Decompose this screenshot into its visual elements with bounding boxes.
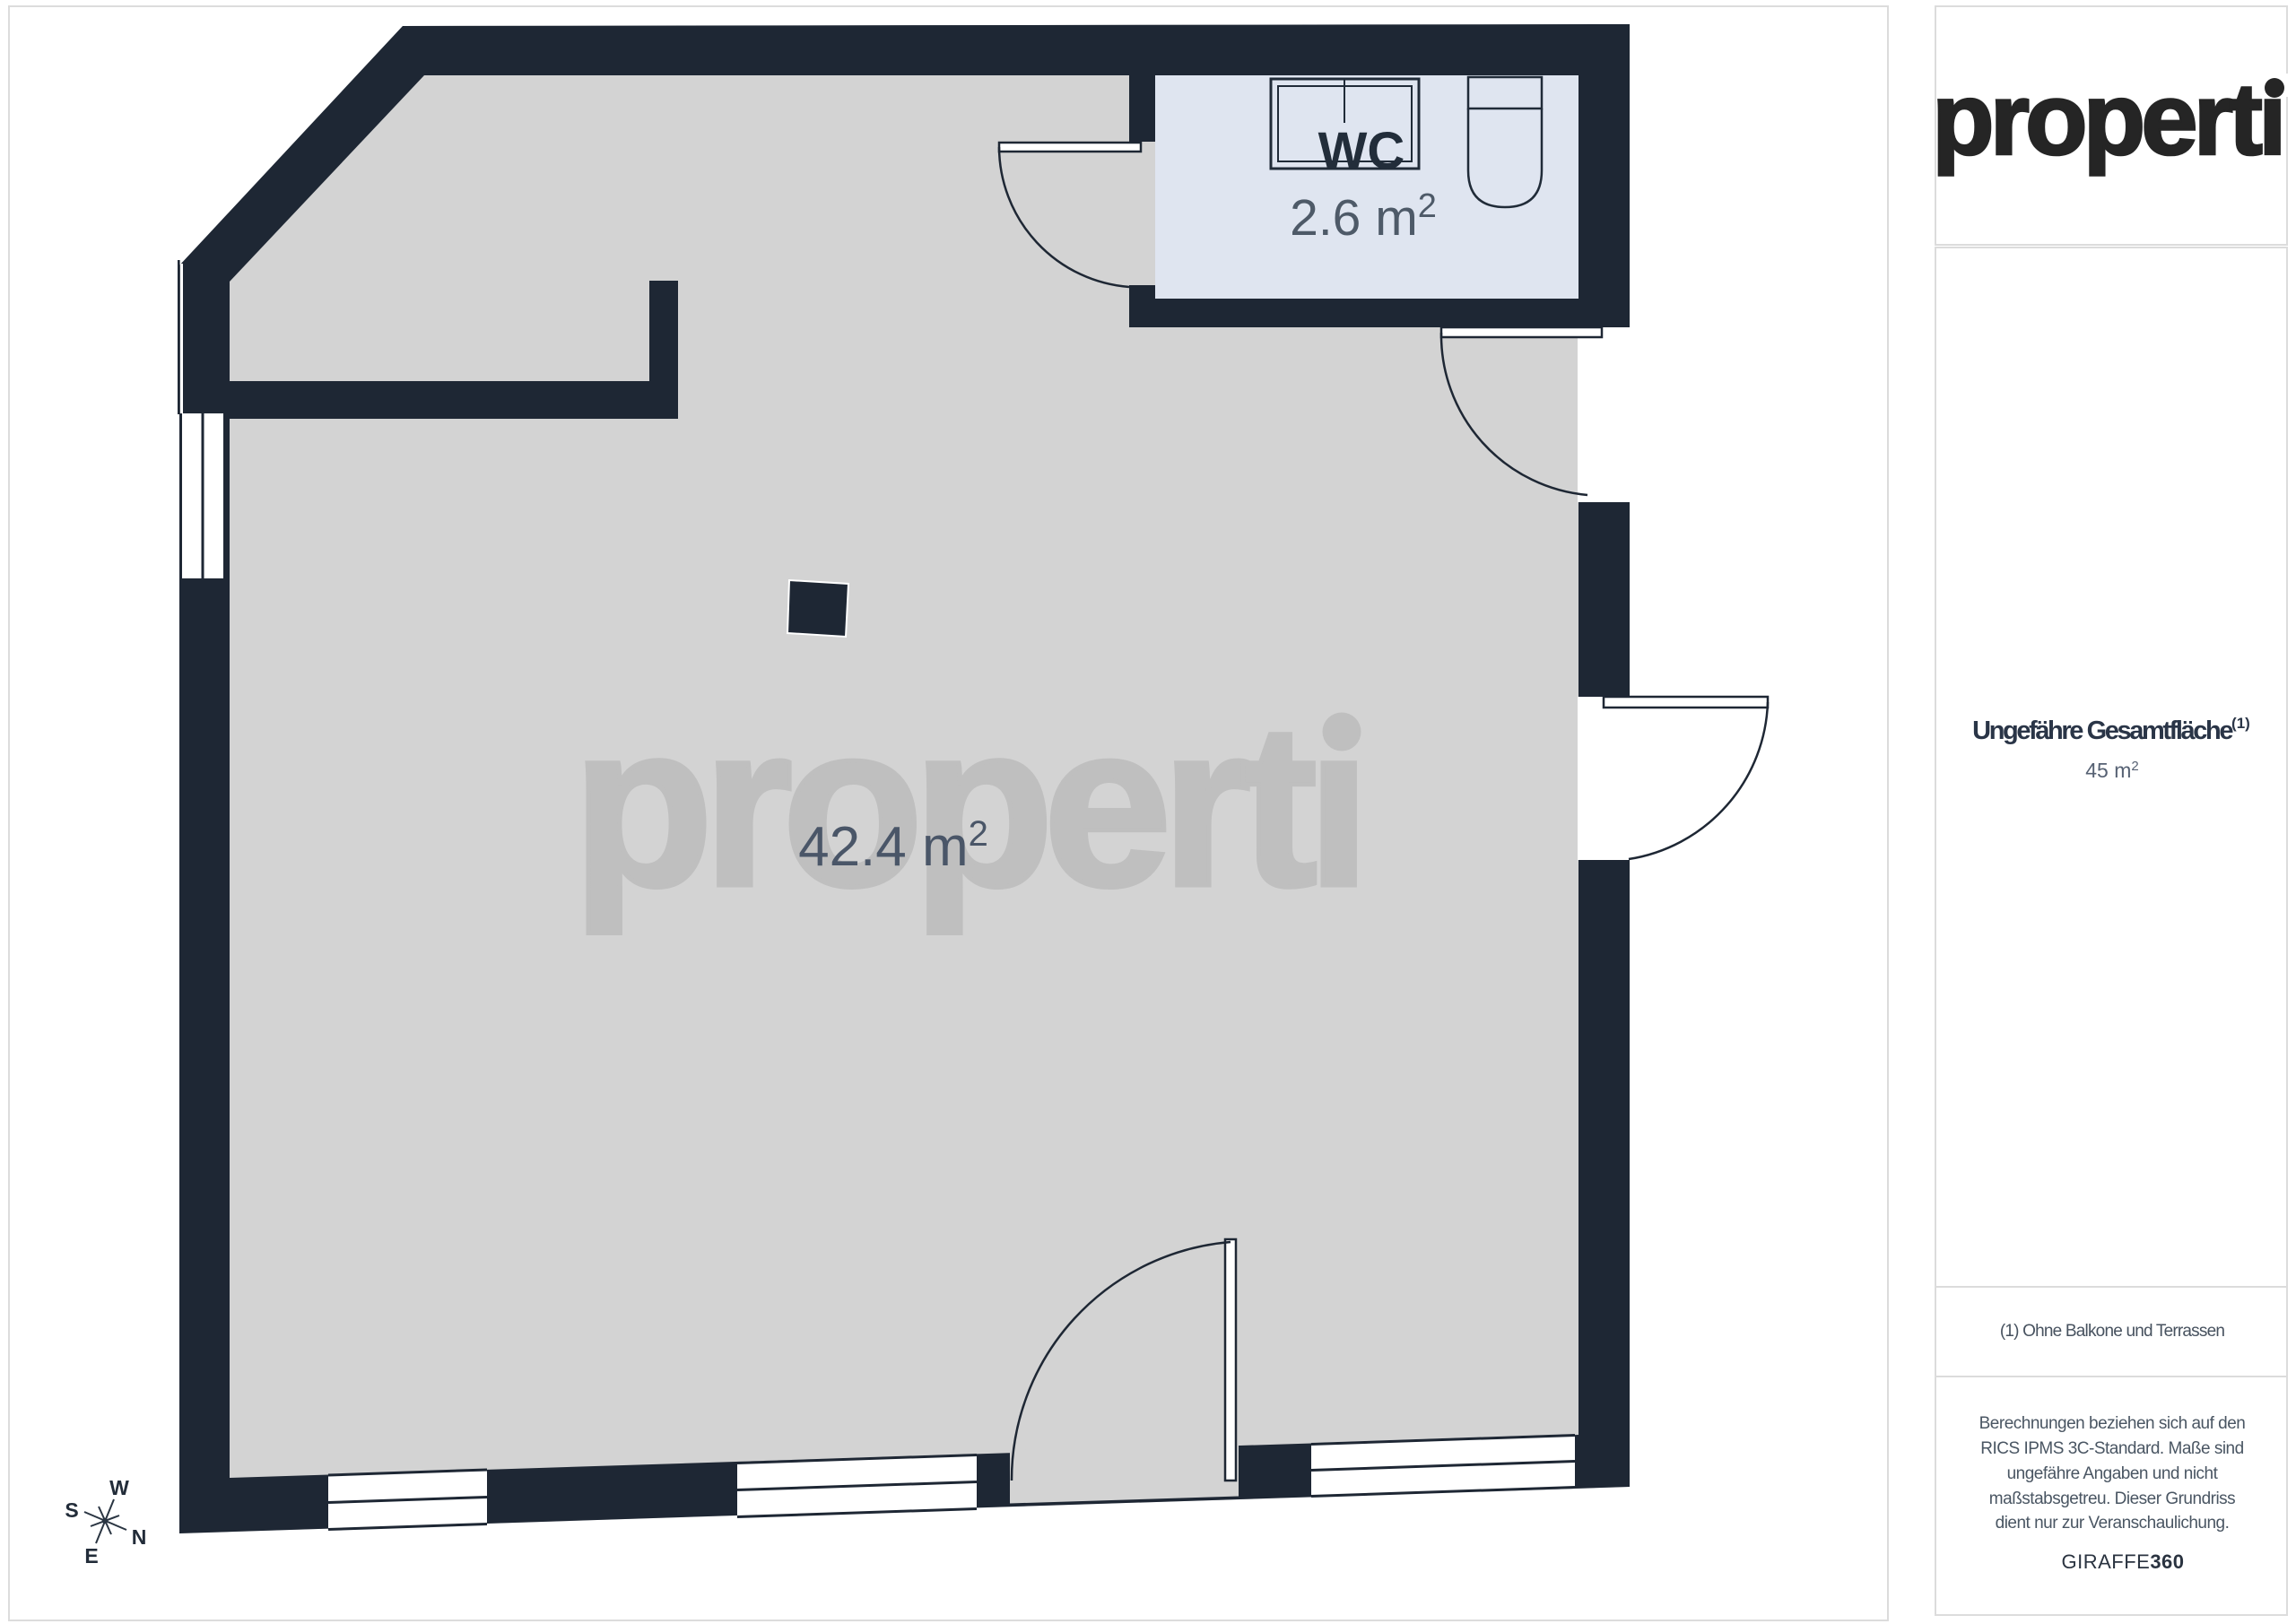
svg-text:WC: WC xyxy=(1318,122,1405,180)
svg-text:45 m2: 45 m2 xyxy=(2085,759,2138,782)
svg-text:S: S xyxy=(65,1498,78,1522)
svg-text:maßstabsgetreu. Dieser Grundri: maßstabsgetreu. Dieser Grundriss xyxy=(1989,1489,2235,1508)
svg-text:42.4 m2: 42.4 m2 xyxy=(798,814,988,878)
svg-text:Ungefähre Gesamtfläche(1): Ungefähre Gesamtfläche(1) xyxy=(1972,715,2250,745)
svg-text:properti: properti xyxy=(1932,63,2283,177)
svg-text:ungefähre Angaben und nicht: ungefähre Angaben und nicht xyxy=(2007,1464,2219,1483)
svg-text:properti: properti xyxy=(572,675,1361,935)
svg-text:N: N xyxy=(132,1525,147,1549)
svg-text:Berechnungen beziehen sich auf: Berechnungen beziehen sich auf den xyxy=(1979,1414,2246,1433)
svg-text:RICS IPMS 3C-Standard. Maße si: RICS IPMS 3C-Standard. Maße sind xyxy=(1980,1439,2243,1458)
svg-text:W: W xyxy=(109,1476,129,1499)
svg-text:E: E xyxy=(84,1544,98,1568)
svg-text:(1) Ohne Balkone und Terrassen: (1) Ohne Balkone und Terrassen xyxy=(2000,1322,2224,1341)
svg-text:dient nur zur Veranschaulichun: dient nur zur Veranschaulichung. xyxy=(1996,1514,2230,1533)
svg-text:GIRAFFE360: GIRAFFE360 xyxy=(2061,1550,2184,1573)
svg-text:2.6 m2: 2.6 m2 xyxy=(1290,187,1437,247)
